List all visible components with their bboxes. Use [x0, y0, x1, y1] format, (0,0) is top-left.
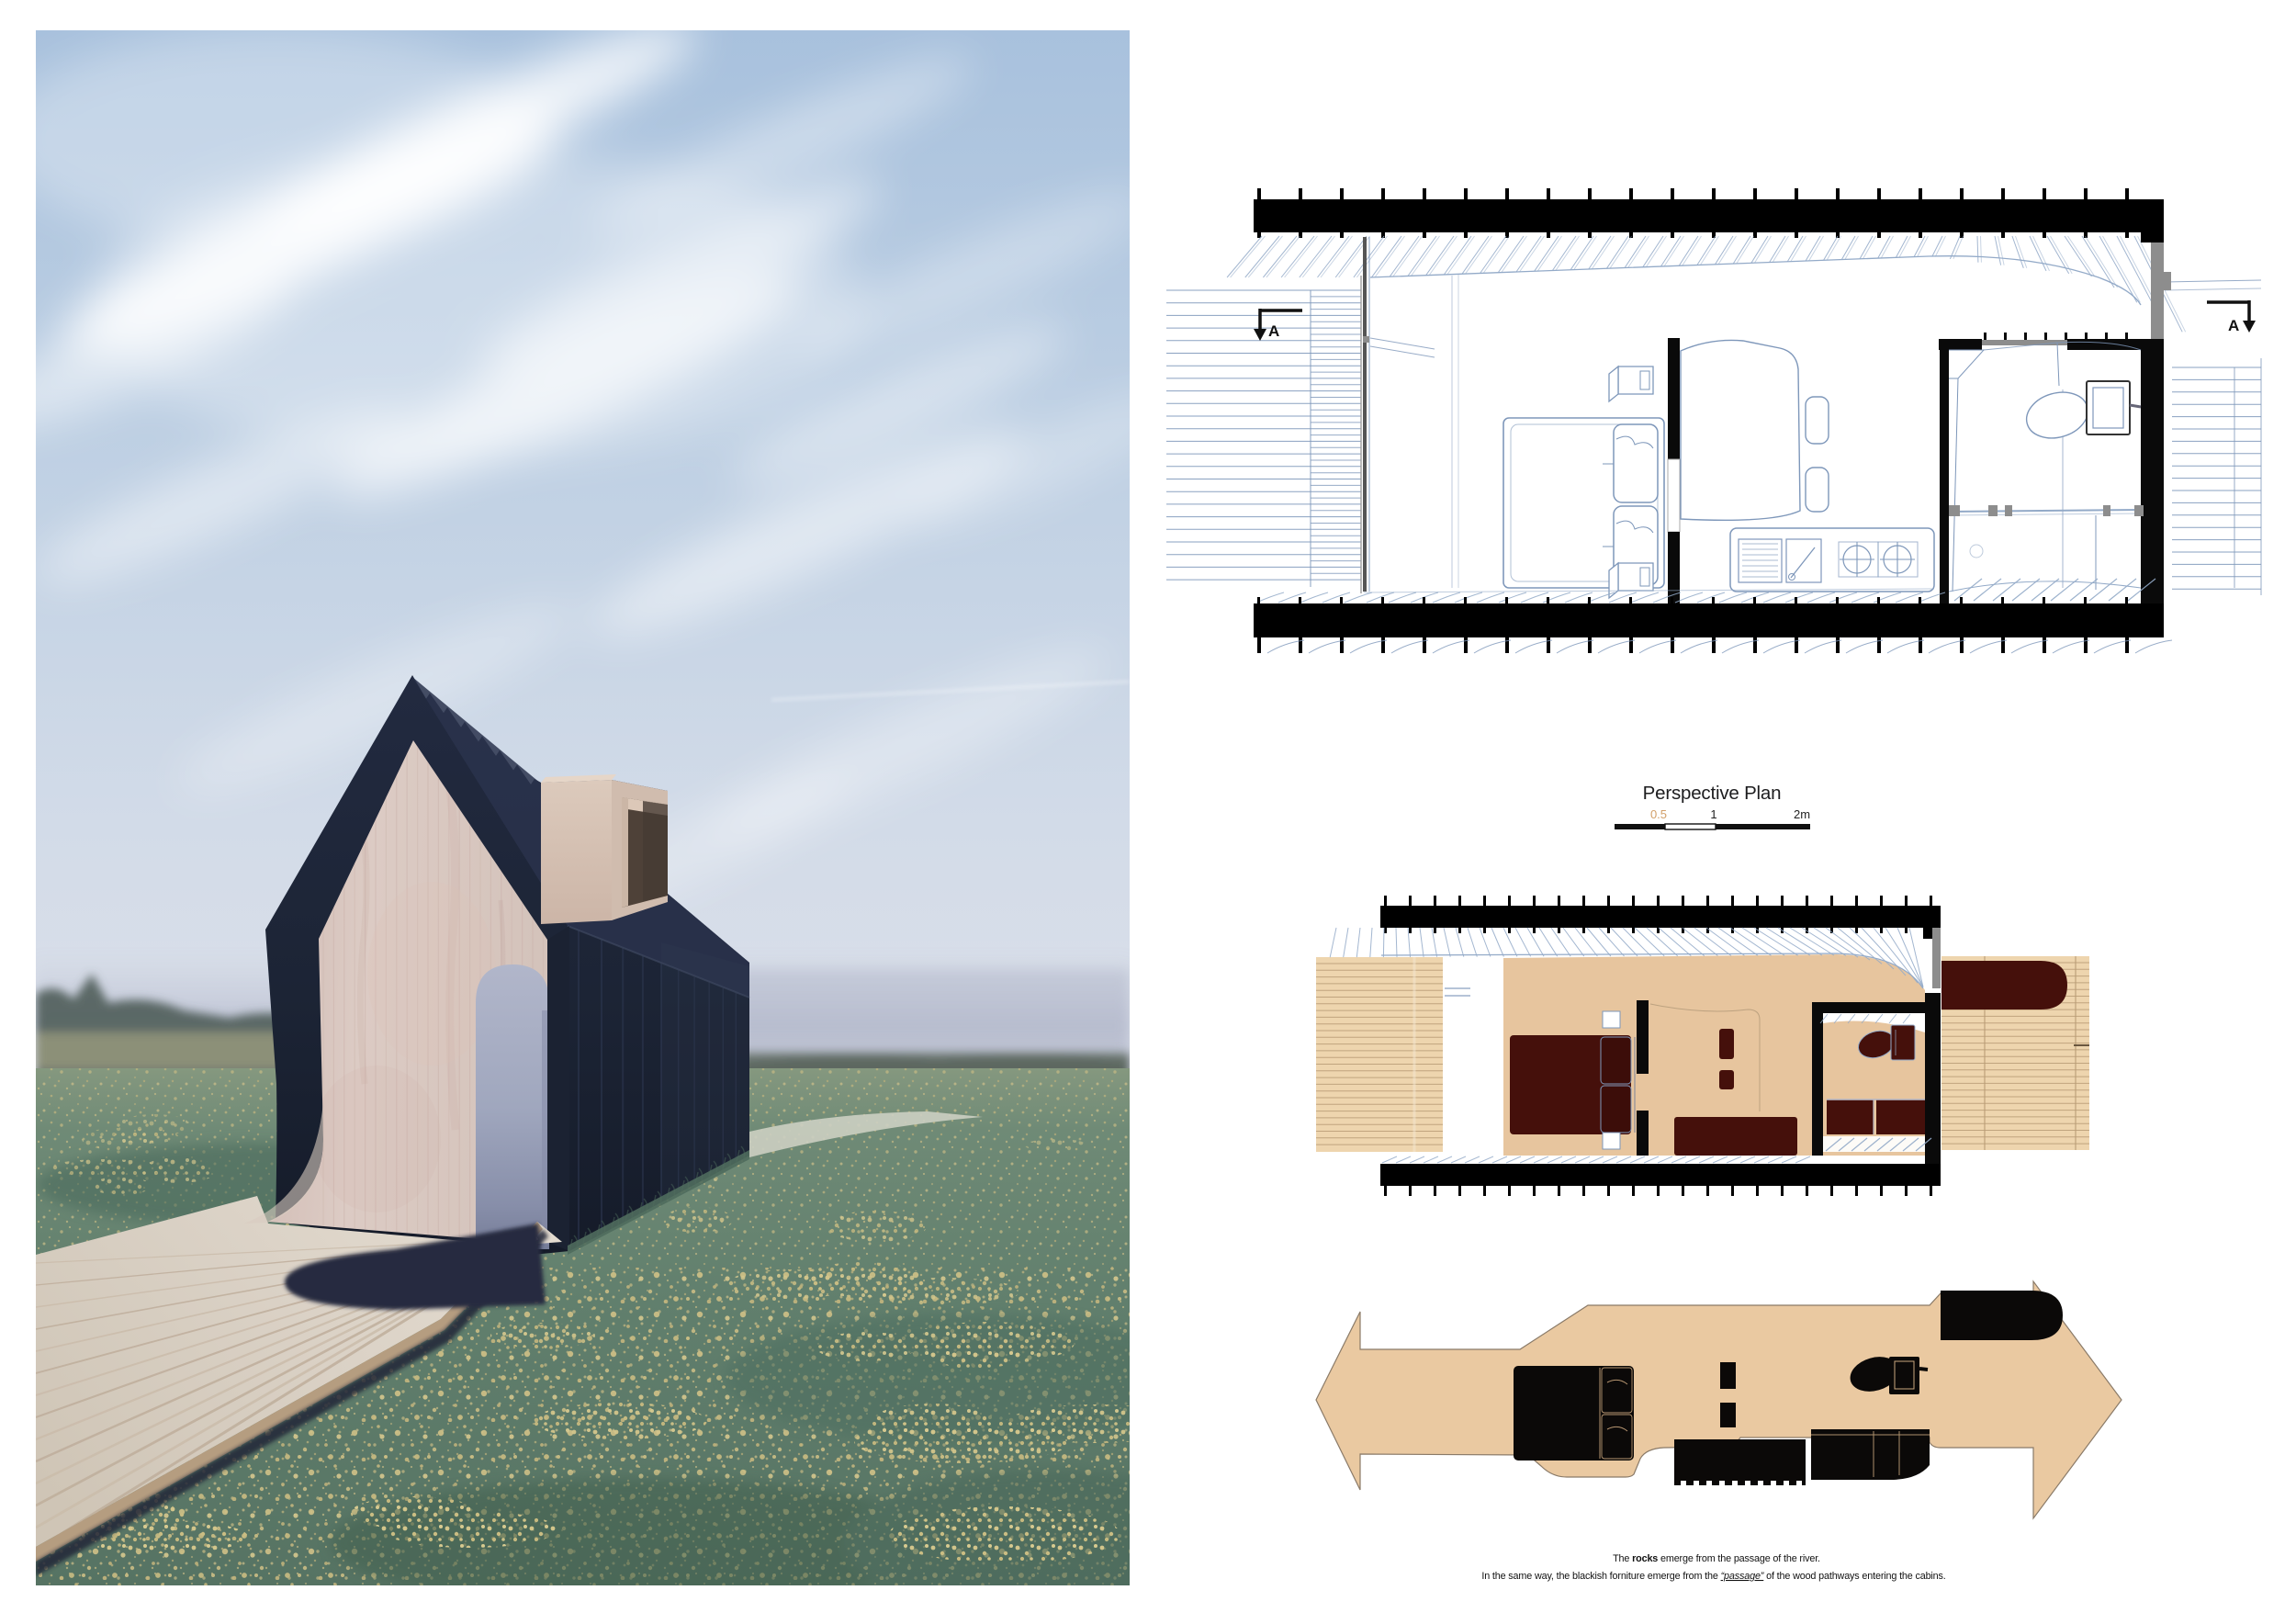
svg-text:2m: 2m	[1794, 807, 1810, 821]
svg-text:Perspective Plan: Perspective Plan	[1643, 783, 1782, 804]
svg-text:A: A	[1268, 322, 1279, 340]
svg-text:A: A	[2228, 317, 2239, 334]
svg-text:In the same way, the blackish: In the same way, the blackish forniture …	[1481, 1571, 1945, 1582]
svg-text:0.5: 0.5	[1650, 807, 1667, 821]
svg-text:The rocks emerge from the pass: The rocks emerge from the passage of the…	[1613, 1553, 1820, 1564]
svg-text:1: 1	[1710, 807, 1716, 821]
